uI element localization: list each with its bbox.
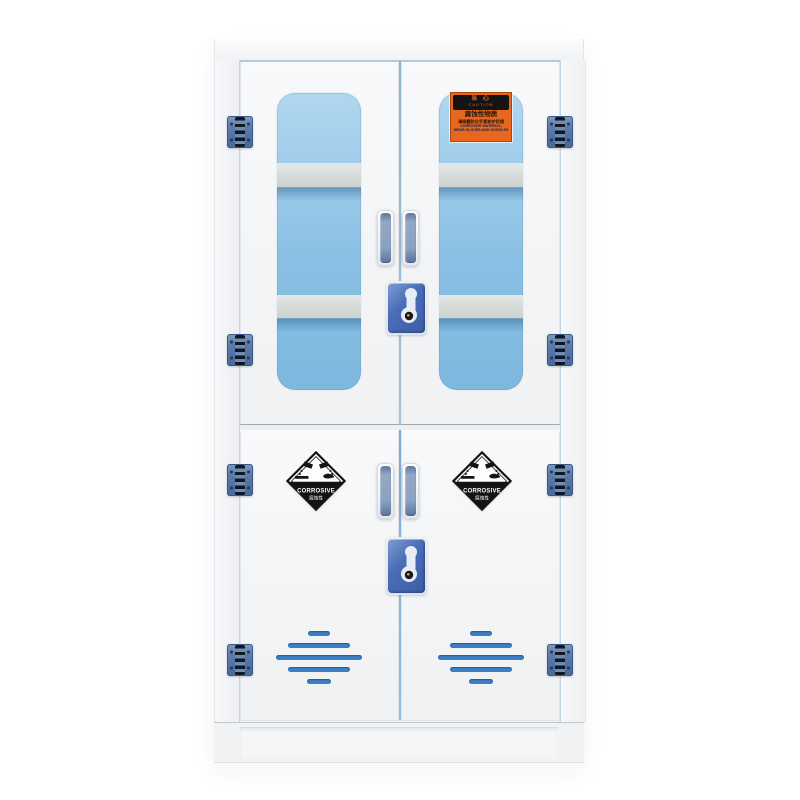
corrosive-diamond-label: CORROSIVE 腐蚀性 (286, 451, 346, 511)
shelf-shadow (277, 187, 361, 200)
door-hinge-icon (227, 464, 253, 496)
handle-grip (380, 466, 391, 516)
shelf-shadow (439, 318, 523, 331)
shelf-band (277, 295, 361, 318)
vent-slot (470, 631, 492, 636)
product-photo-stage: 当 心 CAUTION 腐蚀性物质 请佩戴防化手套和护目镜 CORROSIVE … (0, 0, 800, 800)
lock-plate (388, 539, 425, 593)
door-hinge-icon (227, 644, 253, 676)
left-door-edge-line (239, 60, 240, 722)
handle-grip (405, 213, 416, 263)
cabinet-base (214, 722, 584, 763)
door-hinge-icon (227, 334, 253, 366)
door-hinge-icon (547, 644, 573, 676)
caution-sticker: 当 心 CAUTION 腐蚀性物质 请佩戴防化手套和护目镜 CORROSIVE … (450, 92, 512, 142)
corrosive-text-en: CORROSIVE (463, 489, 501, 495)
vent-slot (307, 679, 331, 684)
lower-left-door-handle (377, 463, 394, 519)
lower-door-lock (386, 537, 427, 595)
vent-slot (276, 655, 362, 660)
vent-slot (288, 667, 350, 672)
shelf-shadow (277, 318, 361, 331)
handle-grip (380, 213, 391, 263)
vent-slot (438, 655, 524, 660)
upper-left-door-handle (377, 210, 394, 266)
shelf-band (277, 163, 361, 187)
corrosive-text-cn: 腐蚀性 (309, 495, 323, 502)
lock-plate (388, 283, 425, 333)
vent-slot (308, 631, 330, 636)
vent-slot (450, 667, 512, 672)
cabinet-left-frame (214, 60, 241, 722)
vent-slot (469, 679, 493, 684)
handle-grip (405, 466, 416, 516)
shelf-band (439, 295, 523, 318)
upper-door-lock (386, 281, 427, 335)
caution-line4: WEAR GLOVES AND GOGGLES (451, 128, 511, 132)
upper-right-door-handle (402, 210, 419, 266)
door-hinge-icon (547, 334, 573, 366)
kick-panel (240, 727, 558, 758)
door-hinge-icon (227, 116, 253, 148)
door-hinge-icon (547, 464, 573, 496)
shelf-shadow (439, 187, 523, 200)
corrosive-text-cn: 腐蚀性 (475, 495, 489, 502)
corrosive-diamond-svg: CORROSIVE 腐蚀性 (452, 451, 512, 511)
keyhole-icon (388, 539, 425, 593)
keyhole-icon (388, 283, 425, 333)
upper-center-door-gap (399, 61, 401, 424)
caution-line1: 腐蚀性物质 (451, 111, 511, 119)
shelf-band (439, 163, 523, 187)
caution-title-en: CAUTION (453, 103, 509, 107)
lower-right-door-handle (402, 463, 419, 519)
corrosive-text-en: CORROSIVE (297, 489, 335, 495)
cabinet-top-cap (214, 38, 584, 62)
vent-slot (450, 643, 512, 648)
door-hinge-icon (547, 116, 573, 148)
cabinet-right-frame (559, 60, 586, 722)
right-door-edge-line (560, 60, 561, 722)
corrosive-diamond-svg: CORROSIVE 腐蚀性 (286, 451, 346, 511)
vent-slot (288, 643, 350, 648)
caution-sticker-header: 当 心 CAUTION (453, 95, 509, 110)
left-glass-window (277, 93, 361, 390)
corrosive-diamond-label: CORROSIVE 腐蚀性 (452, 451, 512, 511)
